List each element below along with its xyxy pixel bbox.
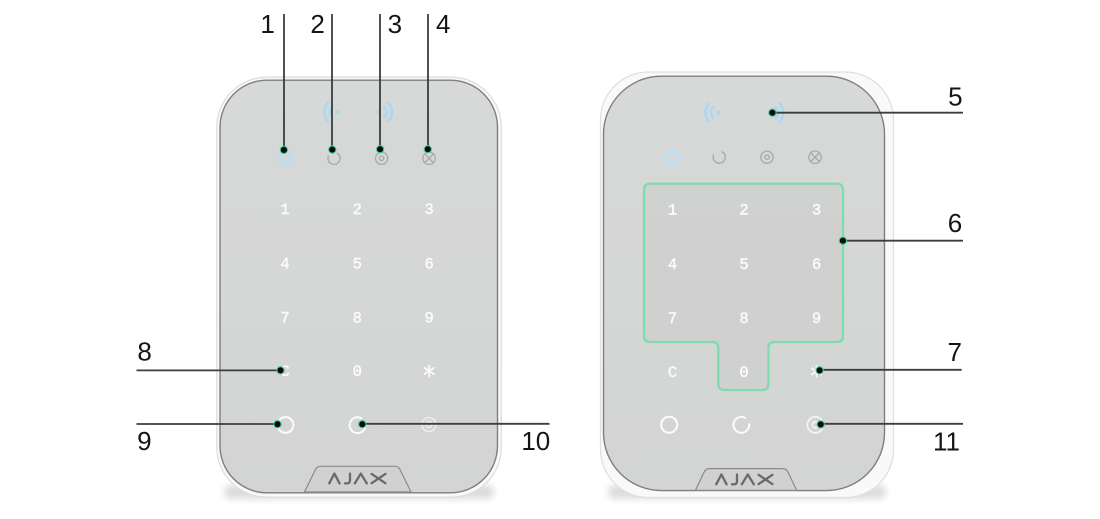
svg-text:7: 7 — [668, 310, 677, 328]
svg-text:6: 6 — [812, 256, 821, 274]
svg-text:C: C — [668, 364, 677, 382]
svg-text:0: 0 — [739, 364, 748, 382]
svg-text:9: 9 — [812, 310, 821, 328]
svg-text:11: 11 — [933, 426, 960, 456]
svg-text:8: 8 — [739, 310, 748, 328]
svg-text:6: 6 — [948, 208, 962, 238]
svg-text:3: 3 — [388, 9, 402, 39]
svg-text:1: 1 — [280, 201, 289, 219]
svg-text:5: 5 — [739, 256, 748, 274]
svg-text:3: 3 — [425, 201, 434, 219]
svg-text:4: 4 — [280, 255, 289, 273]
svg-text:7: 7 — [947, 337, 961, 367]
svg-text:4: 4 — [668, 256, 677, 274]
svg-text:8: 8 — [353, 310, 362, 328]
svg-text:10: 10 — [521, 426, 550, 456]
svg-text:1: 1 — [260, 9, 274, 39]
svg-text:8: 8 — [137, 336, 151, 366]
svg-text:7: 7 — [280, 310, 289, 328]
svg-text:2: 2 — [353, 201, 362, 219]
svg-text:2: 2 — [739, 202, 748, 220]
svg-text:0: 0 — [353, 363, 362, 381]
svg-text:4: 4 — [436, 9, 450, 39]
svg-text:5: 5 — [353, 255, 362, 273]
svg-text:9: 9 — [137, 426, 151, 456]
svg-text:2: 2 — [310, 9, 324, 39]
svg-text:5: 5 — [948, 81, 962, 111]
svg-text:1: 1 — [668, 202, 677, 220]
svg-text:9: 9 — [425, 310, 434, 328]
svg-text:3: 3 — [812, 202, 821, 220]
svg-text:6: 6 — [425, 255, 434, 273]
